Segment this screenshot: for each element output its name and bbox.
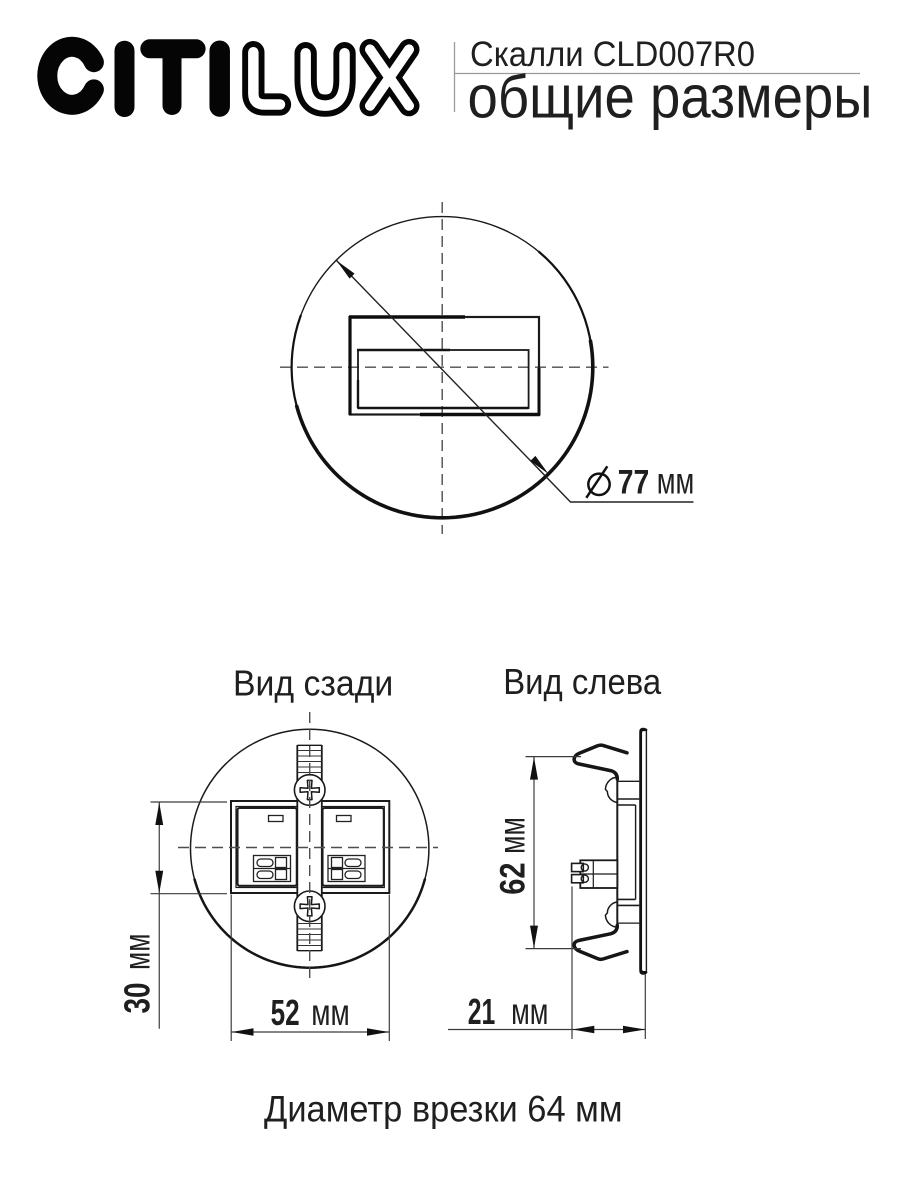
svg-text:52: 52	[271, 992, 300, 1033]
svg-text:Вид сзади: Вид сзади	[233, 662, 393, 703]
svg-text:общие размеры: общие размеры	[468, 64, 873, 131]
svg-text:мм: мм	[511, 991, 548, 1032]
svg-text:30: 30	[116, 983, 157, 1014]
svg-text:мм: мм	[657, 460, 695, 501]
svg-text:77: 77	[618, 463, 650, 501]
svg-text:21: 21	[468, 991, 496, 1032]
svg-text:Диаметр врезки 64 мм: Диаметр врезки 64 мм	[264, 1089, 623, 1130]
svg-text:мм: мм	[311, 992, 350, 1033]
svg-text:мм: мм	[116, 934, 157, 971]
svg-text:62: 62	[492, 863, 532, 895]
svg-text:мм: мм	[491, 817, 532, 854]
svg-text:Вид слева: Вид слева	[503, 661, 662, 702]
